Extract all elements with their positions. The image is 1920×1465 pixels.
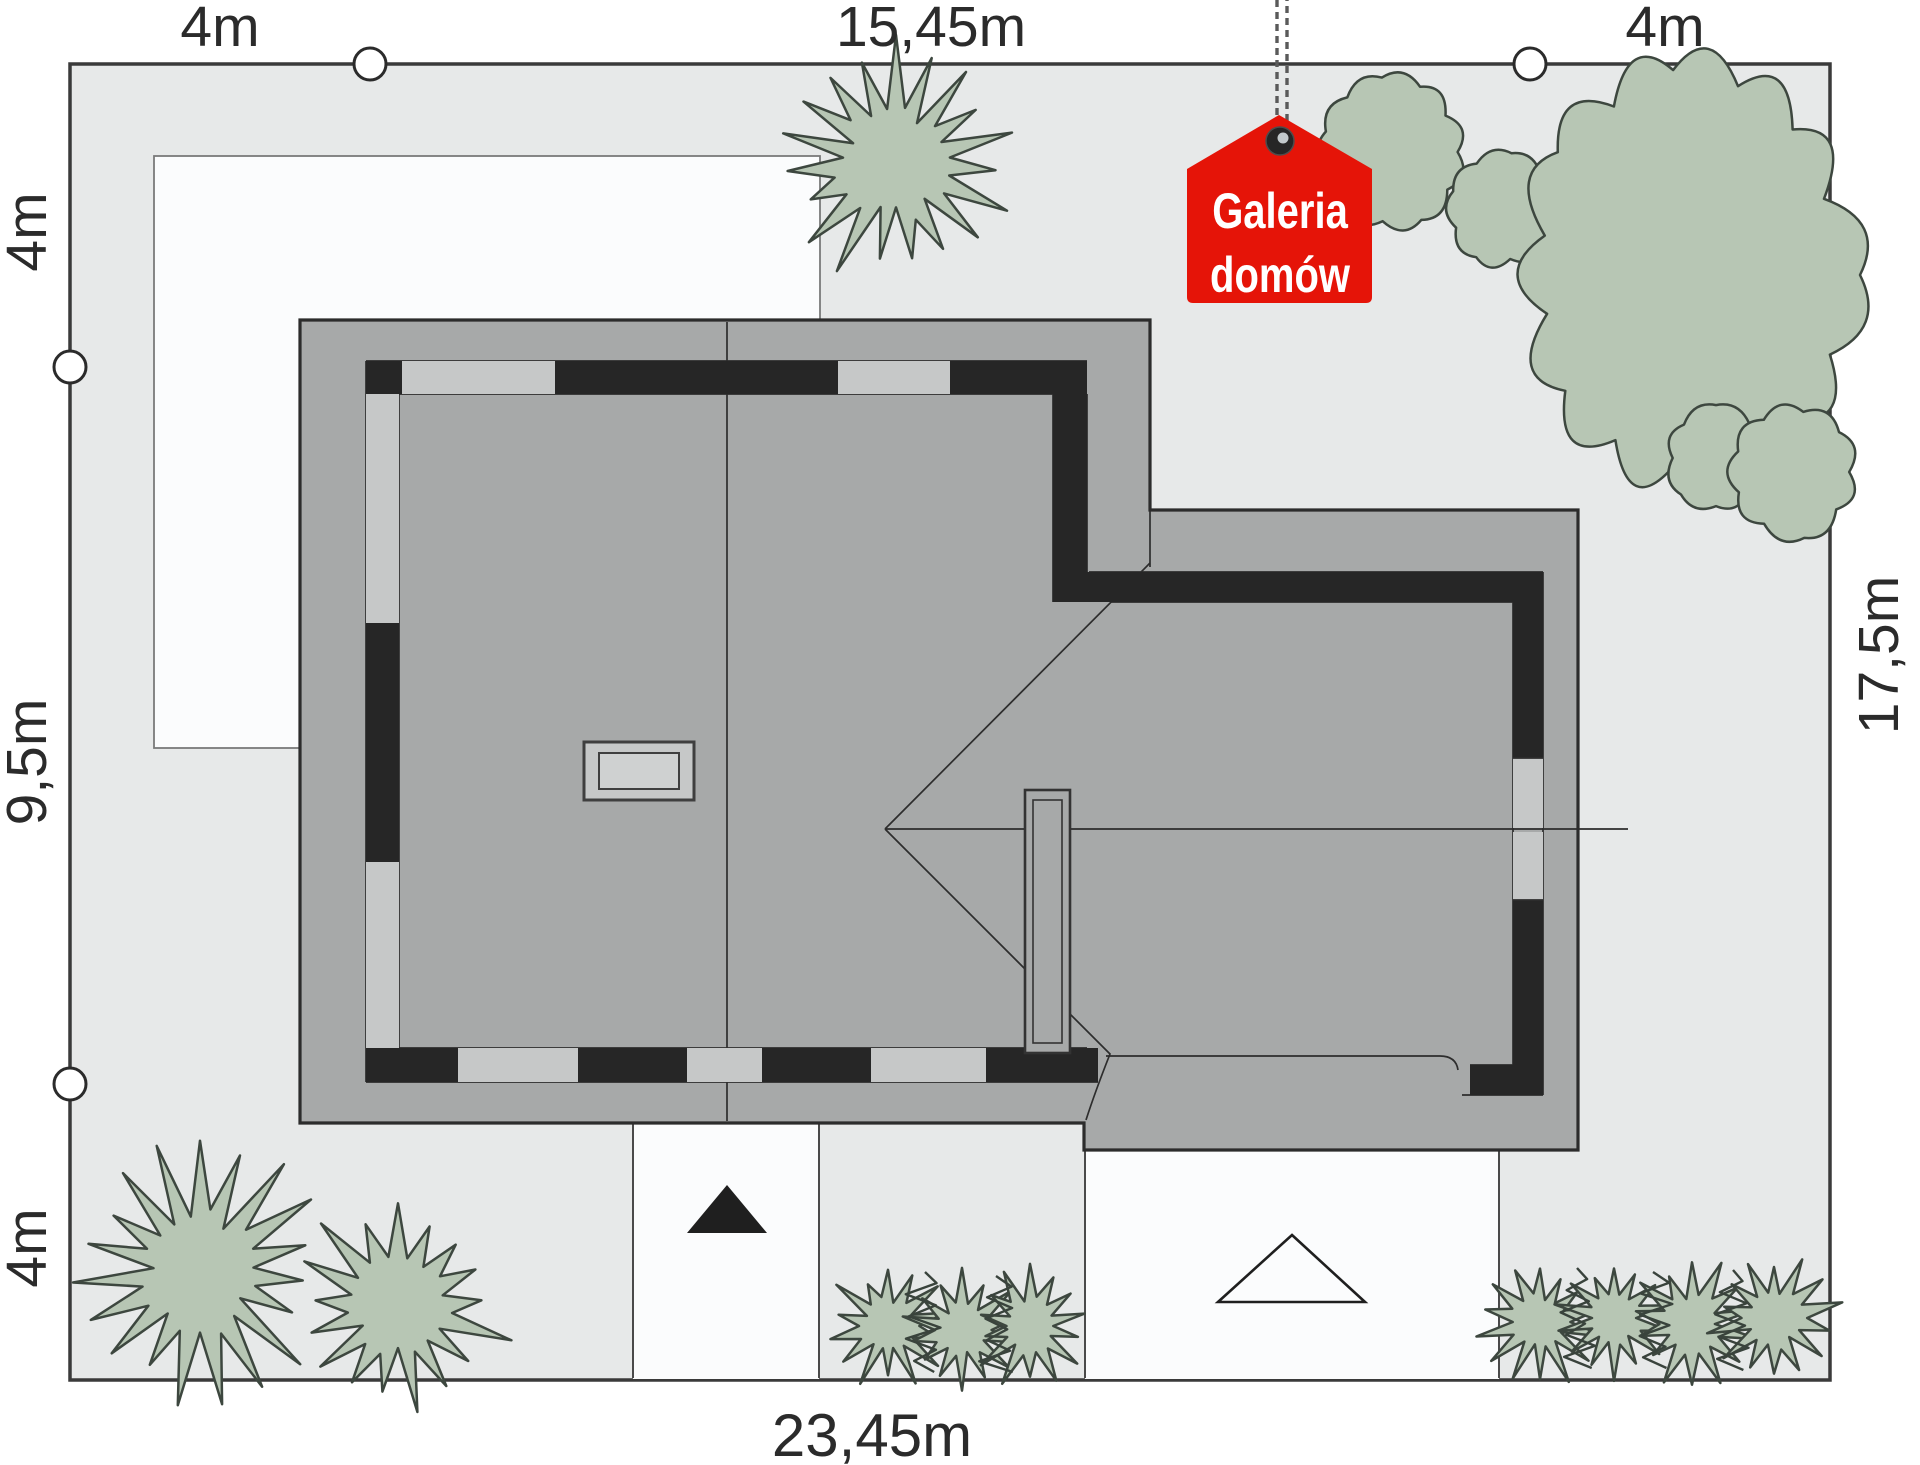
chimney-horizontal	[584, 742, 694, 800]
dimension-bottom: 23,45m	[772, 1402, 972, 1465]
site-plan-drawing: Galeria domów 4m 15,45m 4m 4m 9,5m 4m 17…	[0, 0, 1920, 1465]
dimension-left-bottom: 4m	[0, 1208, 59, 1287]
boundary-marker-icon	[54, 351, 86, 383]
driveway-right	[1085, 1151, 1499, 1379]
dimension-top-center: 15,45m	[836, 0, 1026, 59]
logo-line2: domów	[1210, 247, 1351, 303]
logo-grommet-pin	[1278, 133, 1289, 144]
dimension-top-left: 4m	[180, 0, 259, 59]
boundary-marker-icon	[354, 48, 386, 80]
dimension-top-right: 4m	[1625, 0, 1704, 59]
chimney-vertical	[1025, 790, 1070, 1053]
boundary-marker-icon	[54, 1068, 86, 1100]
dimension-right-side: 17,5m	[1847, 576, 1911, 734]
driveway-left	[633, 1124, 819, 1379]
site-plan-canvas: Galeria domów 4m 15,45m 4m 4m 9,5m 4m 17…	[0, 0, 1920, 1465]
dimension-left-top: 4m	[0, 192, 59, 271]
logo-line1: Galeria	[1212, 183, 1348, 239]
boundary-marker-icon	[1514, 48, 1546, 80]
dimension-left-middle: 9,5m	[0, 699, 59, 826]
